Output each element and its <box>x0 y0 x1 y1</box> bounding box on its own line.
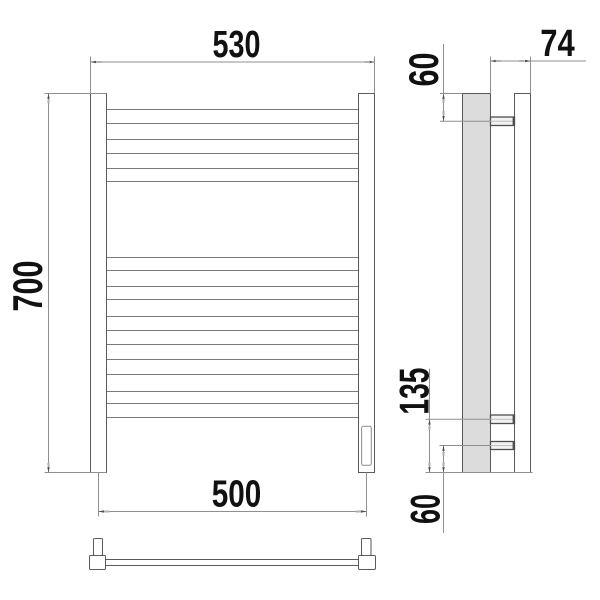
svg-text:74: 74 <box>540 23 575 65</box>
svg-text:60: 60 <box>400 53 447 87</box>
svg-text:135: 135 <box>390 368 437 415</box>
svg-text:700: 700 <box>4 260 51 311</box>
svg-text:60: 60 <box>401 494 448 524</box>
svg-text:500: 500 <box>212 474 262 516</box>
svg-text:530: 530 <box>213 24 261 66</box>
